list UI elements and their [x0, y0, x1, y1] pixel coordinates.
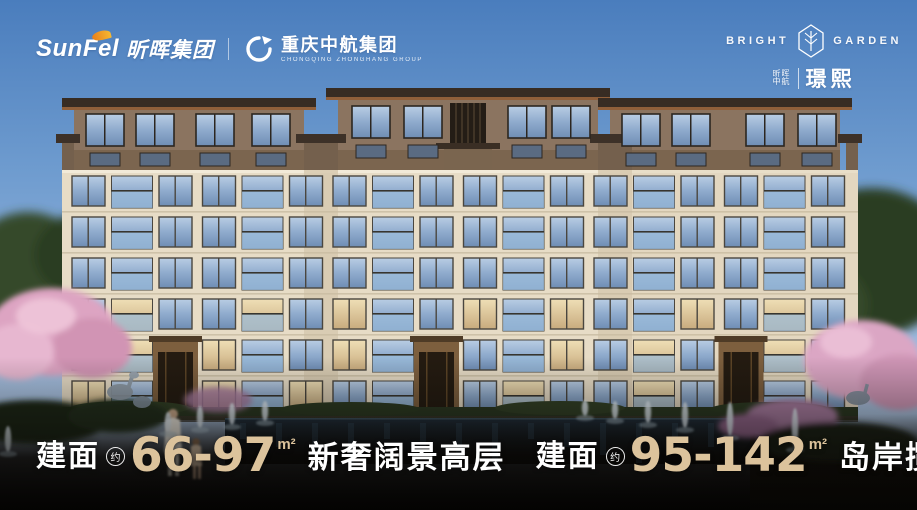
- product-desc: 新奢阔景高层: [308, 442, 506, 476]
- zhonghang-logo: 重庆中航集团 CHONGQING ZHONGHANG GROUP: [243, 34, 423, 64]
- project-logo-divider: [798, 68, 799, 89]
- project-name: 璟熙: [806, 63, 856, 93]
- area-label: 建面: [536, 442, 600, 476]
- project-en-right: GARDEN: [833, 35, 902, 47]
- product-desc: 岛岸揽景洋房: [839, 442, 917, 476]
- real-estate-poster: SunFel 昕晖集团 重庆中航集团 CHONGQING ZHONGHANG G…: [0, 0, 917, 510]
- area-range: 66-97: [130, 436, 275, 476]
- garden-emblem-icon: [798, 24, 824, 58]
- building-facade: [56, 88, 862, 422]
- zhonghang-swirl-icon: [243, 34, 273, 64]
- tagline: 建面 约 66-97 m² 新奢阔景高层 建面 约 95-142 m² 岛岸揽景…: [36, 436, 917, 476]
- project-logo: BRIGHT GARDEN 昕晖 中航 璟熙: [725, 24, 903, 93]
- zhonghang-en-name: CHONGQING ZHONGHANG GROUP: [281, 57, 423, 63]
- zhonghang-cn-name: 重庆中航集团: [281, 36, 423, 54]
- corporate-logos: SunFel 昕晖集团 重庆中航集团 CHONGQING ZHONGHANG G…: [36, 34, 423, 64]
- sunfel-cn-name: 昕晖集团: [126, 34, 214, 64]
- tagline-segment-highrise: 建面 约 66-97 m² 新奢阔景高层: [36, 436, 506, 476]
- sunfel-wordmark: SunFel: [36, 35, 119, 62]
- logo-divider: [228, 38, 229, 60]
- area-unit: m²: [277, 437, 295, 452]
- approx-circle-badge: 约: [106, 447, 125, 466]
- approx-circle-badge: 约: [606, 447, 625, 466]
- project-owner-names: 昕晖 中航: [773, 70, 791, 86]
- area-unit: m²: [809, 437, 827, 452]
- tagline-segment-flats: 建面 约 95-142 m² 岛岸揽景洋房: [536, 436, 917, 476]
- project-en-left: BRIGHT: [726, 35, 789, 47]
- area-label: 建面: [36, 442, 100, 476]
- area-range: 95-142: [630, 436, 807, 476]
- sunfel-logo: SunFel: [36, 35, 119, 63]
